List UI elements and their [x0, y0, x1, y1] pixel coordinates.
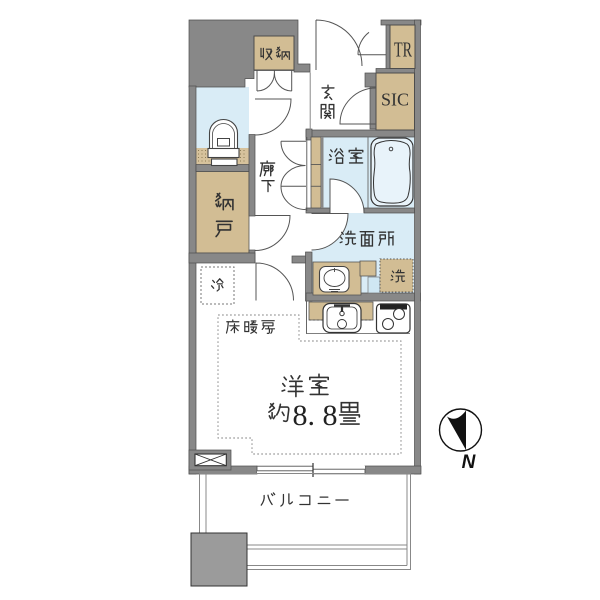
svg-text:N: N: [462, 452, 477, 473]
svg-text:8. 8: 8. 8: [293, 399, 338, 432]
svg-text:TR: TR: [394, 38, 412, 62]
svg-text:SIC: SIC: [381, 90, 409, 110]
